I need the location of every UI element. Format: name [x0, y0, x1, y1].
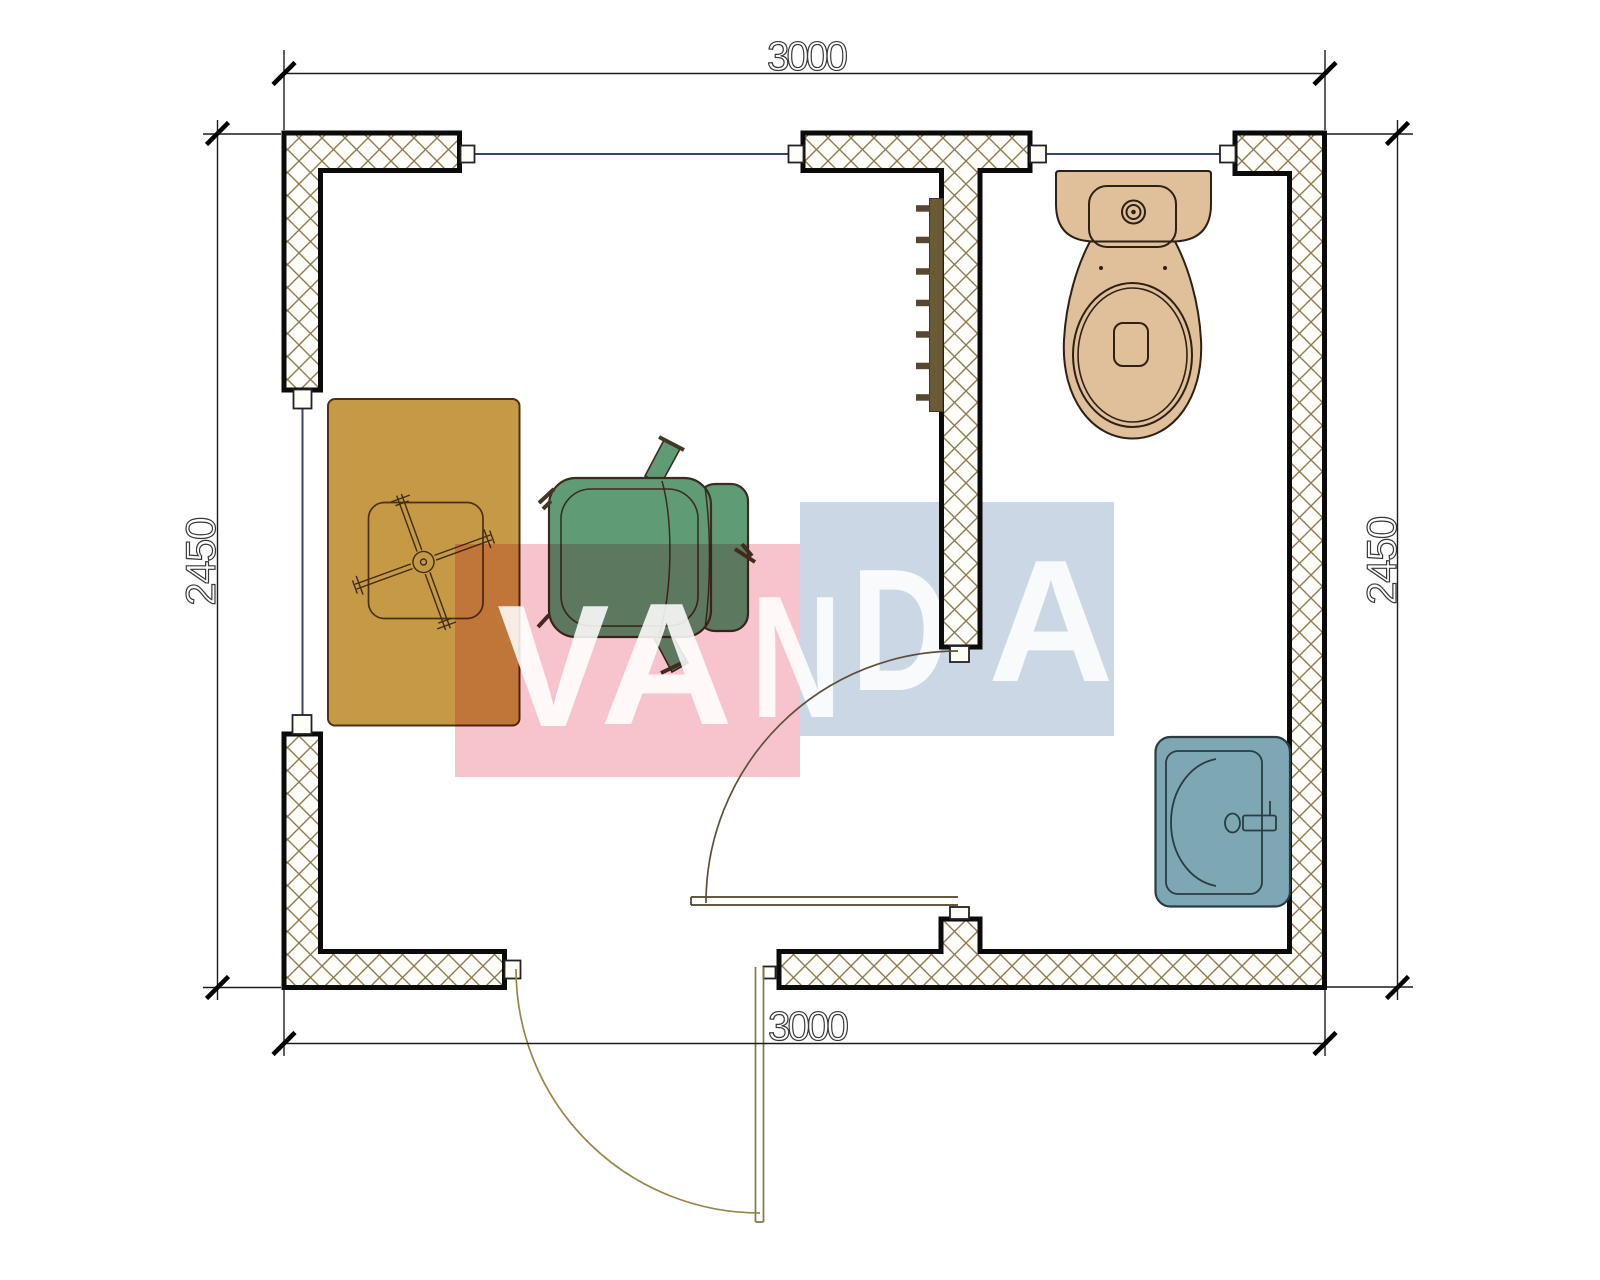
svg-text:A: A — [600, 567, 733, 761]
svg-text:D: D — [851, 534, 949, 728]
svg-text:3000: 3000 — [767, 33, 847, 79]
svg-text:A: A — [988, 523, 1114, 718]
svg-text:N: N — [751, 561, 841, 755]
svg-text:2450: 2450 — [177, 518, 224, 606]
svg-text:2450: 2450 — [1358, 517, 1405, 605]
svg-text:V: V — [497, 570, 610, 764]
svg-text:3000: 3000 — [768, 1003, 848, 1049]
